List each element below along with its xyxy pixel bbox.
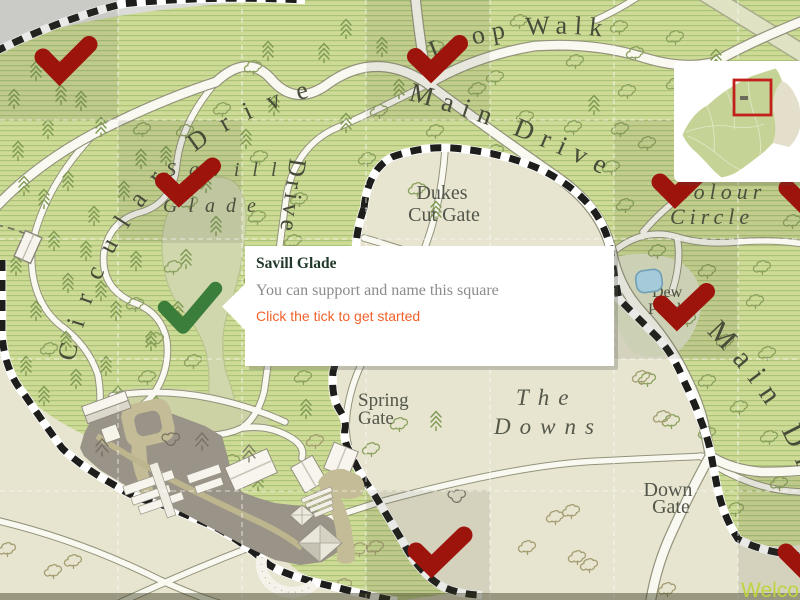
svg-text:Cut Gate: Cut Gate [408,204,480,226]
svg-text:Gate: Gate [358,408,394,429]
svg-text:Gate: Gate [652,496,690,518]
svg-text:Savill Glade: Savill Glade [256,255,337,272]
svg-text:Downs: Downs [493,414,603,439]
svg-text:Circle: Circle [670,204,754,229]
svg-text:Savill: Savill [166,159,290,181]
svg-text:Dukes: Dukes [416,182,467,204]
svg-text:Welco: Welco [741,579,799,600]
svg-text:You can support and name this: You can support and name this square [256,282,499,299]
svg-text:The: The [516,385,578,410]
svg-text:Click the tick to get started: Click the tick to get started [256,308,420,324]
